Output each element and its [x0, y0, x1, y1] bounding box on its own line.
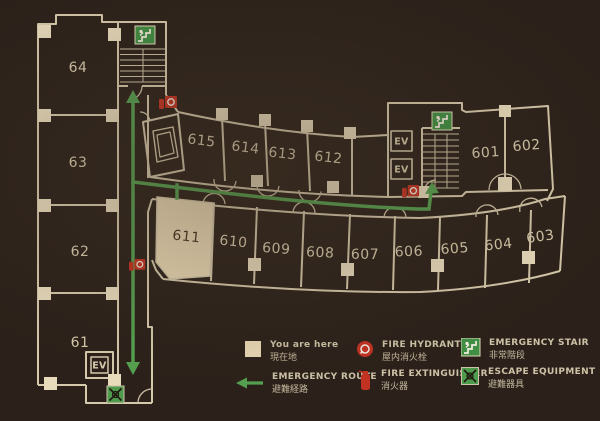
- legend-you-are-here-en: You are here: [270, 340, 338, 351]
- legend-emergency-stair-ja: 非常階段: [489, 351, 589, 362]
- legend-you-are-here: You are here 現在地: [244, 340, 338, 364]
- legend: You are here 現在地 EMERGENCY ROUTE 避難経路 FI…: [0, 0, 600, 421]
- fire-extinguisher-icon: [357, 369, 373, 391]
- legend-emergency-stair: EMERGENCY STAIR 非常階段: [461, 338, 589, 362]
- escape-equipment-icon: [461, 367, 480, 386]
- legend-you-are-here-ja: 現在地: [270, 353, 338, 364]
- legend-fire-hydrant: FIRE HYDRANT 屋内消火栓: [356, 340, 461, 364]
- emergency-route-arrow-icon: [236, 376, 264, 390]
- legend-escape-equipment-ja: 避難器具: [488, 380, 596, 391]
- legend-fire-hydrant-en: FIRE HYDRANT: [382, 340, 461, 351]
- legend-escape-equipment: ESCAPE EQUIPMENT 避難器具: [461, 367, 596, 391]
- evacuation-floor-plan-sign: 64 63 62 61 615 614 613 612 601 602 611 …: [0, 0, 600, 421]
- legend-emergency-route: EMERGENCY ROUTE 避難経路: [236, 372, 377, 396]
- legend-fire-hydrant-ja: 屋内消火栓: [382, 353, 461, 364]
- legend-escape-equipment-en: ESCAPE EQUIPMENT: [488, 367, 596, 378]
- you-are-here-icon: [244, 340, 262, 358]
- legend-emergency-stair-en: EMERGENCY STAIR: [489, 338, 589, 349]
- emergency-stair-icon: [461, 338, 481, 357]
- fire-hydrant-icon: [356, 340, 374, 358]
